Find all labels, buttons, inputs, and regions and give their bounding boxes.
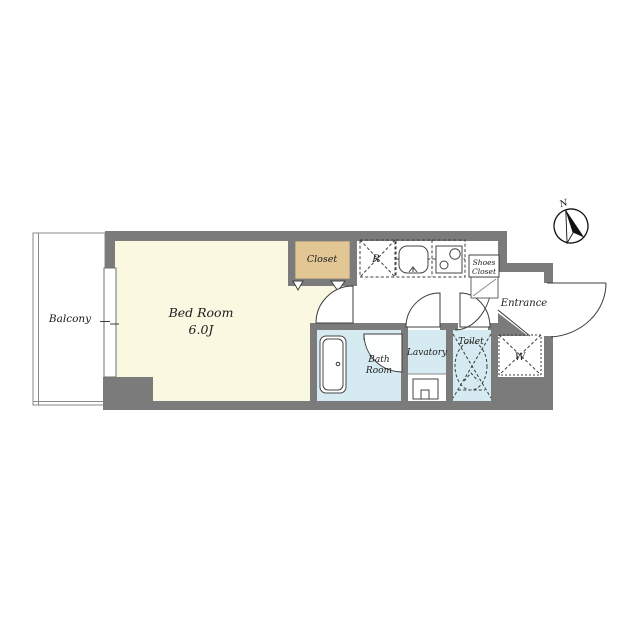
kitchen-sink [399, 246, 428, 273]
shoes-closet-label-2: Closet [472, 267, 497, 276]
north-label: N [558, 198, 571, 211]
bedroom-label: Bed Room [168, 305, 234, 320]
wall-bottom [105, 401, 553, 410]
balcony-label: Balcony [48, 313, 92, 325]
wall-bottom-right-block [491, 377, 553, 410]
balcony-window [100, 268, 119, 377]
wall-right-stub [544, 272, 553, 283]
stove [436, 246, 462, 273]
floor-plan-drawing: Balcony [0, 0, 640, 640]
bathroom-label-1: Bath [367, 355, 389, 365]
lavatory-label: Lavatory [406, 348, 448, 358]
wall-lavatory-toilet [446, 323, 453, 410]
entrance-door-arc [547, 283, 606, 337]
wall-bath-left [310, 323, 317, 410]
entrance-label: Entrance [500, 298, 548, 309]
north-arrow-icon: N [546, 194, 592, 247]
wall-left-upper [105, 241, 115, 268]
wall-upper-right [498, 263, 553, 272]
bathtub [320, 336, 346, 393]
closet-label: Closet [307, 254, 338, 265]
floor-plan-page: Balcony [0, 0, 640, 640]
bathroom-label-2: Room [365, 366, 392, 376]
wall-top [105, 231, 507, 241]
wall-wet-top [310, 323, 408, 330]
wall-pillar [103, 377, 153, 410]
shoes-closet: Shoes Closet [469, 255, 499, 298]
toilet-label: Toilet [458, 337, 484, 347]
wall-closet-right [350, 241, 357, 286]
bedroom-size-label: 6.0J [189, 322, 215, 337]
washer-label: W [515, 352, 526, 363]
balcony: Balcony [33, 233, 105, 405]
refrigerator-label: R [371, 254, 380, 265]
shoes-closet-label-1: Shoes [473, 258, 496, 267]
